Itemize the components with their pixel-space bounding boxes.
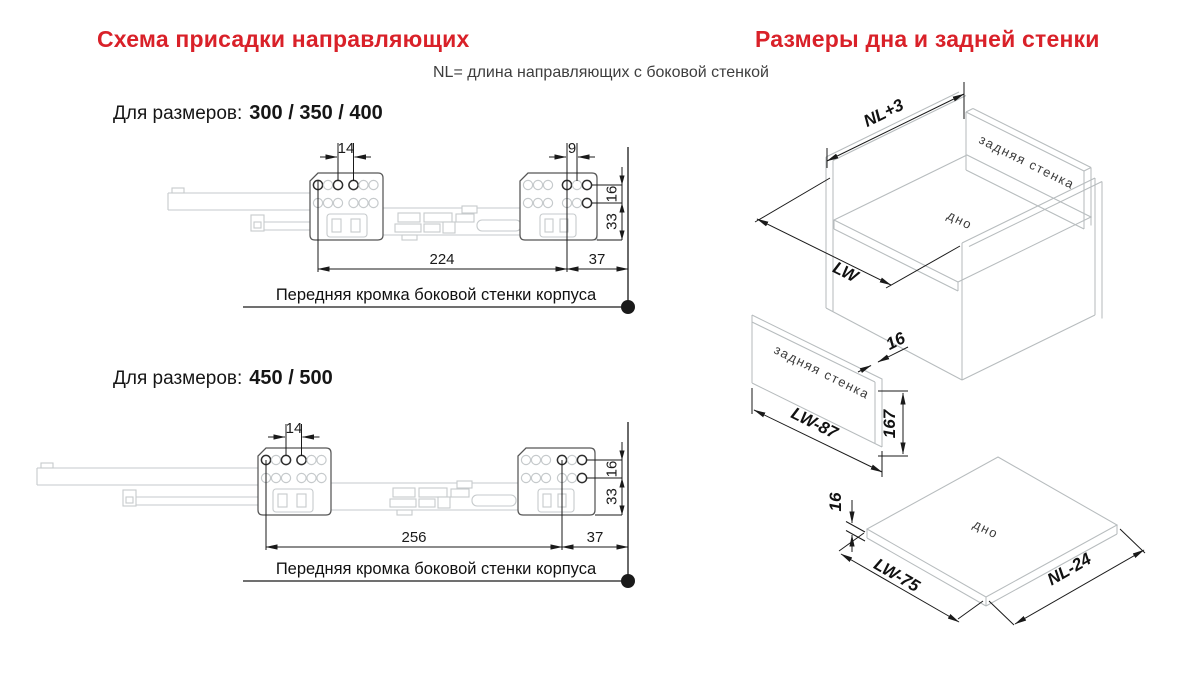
dim-rear-offset: 37 bbox=[587, 529, 604, 546]
dim-back-panel-height: 167 bbox=[880, 408, 899, 438]
front-edge-label: Передняя кромка боковой стенки корпуса bbox=[276, 286, 597, 304]
slide-logo-mark bbox=[472, 495, 516, 506]
front-edge-marker-dot bbox=[621, 574, 635, 588]
front-edge-label: Передняя кромка боковой стенки корпуса bbox=[276, 560, 597, 578]
dim-width: LW bbox=[830, 258, 863, 287]
dim-row-gap: 16 bbox=[604, 186, 621, 203]
slide-rail bbox=[37, 463, 258, 506]
dim-front-distance: 224 bbox=[429, 251, 454, 268]
dim-back-panel-width: LW-87 bbox=[788, 404, 842, 444]
cabinet-bottom-label: дно bbox=[945, 207, 975, 232]
dim-bottom-gap: 33 bbox=[604, 488, 621, 505]
front-edge-marker-dot bbox=[621, 300, 635, 314]
dim-front-pitch: 14 bbox=[286, 420, 303, 437]
bottom-panel-piece: дно 16 LW-75 NL-24 bbox=[826, 457, 1145, 625]
cabinet-isometric: задняя стенка дно NL+3 LW bbox=[755, 82, 1102, 380]
dim-row-gap: 16 bbox=[604, 461, 621, 478]
cabinet-carcass bbox=[826, 92, 1102, 380]
back-panel-label: задняя стенка bbox=[772, 342, 873, 402]
bottom-panel-label: дно bbox=[971, 516, 1001, 541]
dim-bottom-panel-width: LW-75 bbox=[871, 555, 924, 596]
dim-front-pitch: 14 bbox=[338, 140, 355, 157]
back-panel-piece: задняя стенка LW-87 16 167 bbox=[752, 315, 909, 477]
dim-bottom-panel-depth: NL-24 bbox=[1044, 549, 1095, 589]
dim-rear-offset: 37 bbox=[589, 251, 606, 268]
dim-bottom-panel-thickness: 16 bbox=[826, 492, 845, 511]
cabinet-dimensions bbox=[755, 82, 964, 288]
dim-front-distance: 256 bbox=[401, 529, 426, 546]
dim-bottom-gap: 33 bbox=[604, 213, 621, 230]
catalog-page: Схема присадки направляющих Размеры дна … bbox=[0, 0, 1200, 675]
dim-rear-pitch: 9 bbox=[568, 140, 576, 157]
slide-logo-mark bbox=[477, 220, 521, 231]
technical-drawings: 14 9 16 33 224 37 Передняя кромка боково… bbox=[0, 0, 1200, 675]
slide-rail bbox=[168, 188, 310, 231]
slide-drawing-450-500: 14 16 33 256 37 Передняя кромка боковой … bbox=[37, 420, 635, 588]
slide-drawing-300-400: 14 9 16 33 224 37 Передняя кромка боково… bbox=[168, 140, 635, 314]
